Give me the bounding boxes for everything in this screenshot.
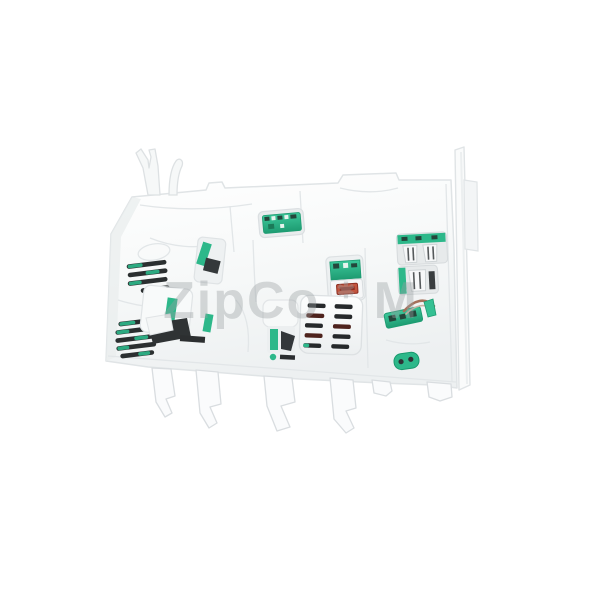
mounting-foot bbox=[427, 382, 452, 401]
grille-slot bbox=[334, 314, 352, 319]
top-tabs bbox=[136, 149, 182, 195]
side-fin-step bbox=[464, 180, 478, 251]
watermark-text-right: M bbox=[374, 272, 419, 330]
fork-tab bbox=[136, 149, 160, 195]
mounting-leg bbox=[330, 378, 356, 433]
product-photo: ZipCo ✱ M bbox=[0, 0, 600, 600]
right-connector-1 bbox=[396, 232, 448, 266]
hook-tab bbox=[169, 159, 182, 195]
mounting-leg bbox=[196, 370, 221, 428]
green-dot bbox=[270, 354, 276, 360]
grille-slot bbox=[331, 344, 349, 349]
watermark-mark: ✱ bbox=[337, 278, 357, 303]
mounting-leg bbox=[264, 376, 295, 431]
right-fin bbox=[455, 147, 478, 390]
grille-slot bbox=[305, 333, 323, 338]
pin-connector bbox=[423, 244, 438, 262]
dark-bar bbox=[280, 355, 295, 360]
watermark-text-left: ZipCo bbox=[163, 272, 320, 330]
dark-slot bbox=[429, 271, 436, 289]
green-bar bbox=[270, 329, 278, 350]
photo-stage: ZipCo ✱ M bbox=[0, 0, 600, 600]
pin-connector bbox=[403, 245, 418, 263]
grille-slot bbox=[335, 304, 353, 309]
pcb-window-top bbox=[258, 208, 305, 238]
grille-slot-green-tip bbox=[303, 343, 309, 347]
mounting-leg bbox=[152, 368, 175, 417]
grille-slot bbox=[332, 334, 350, 339]
mounting-foot bbox=[372, 380, 392, 396]
